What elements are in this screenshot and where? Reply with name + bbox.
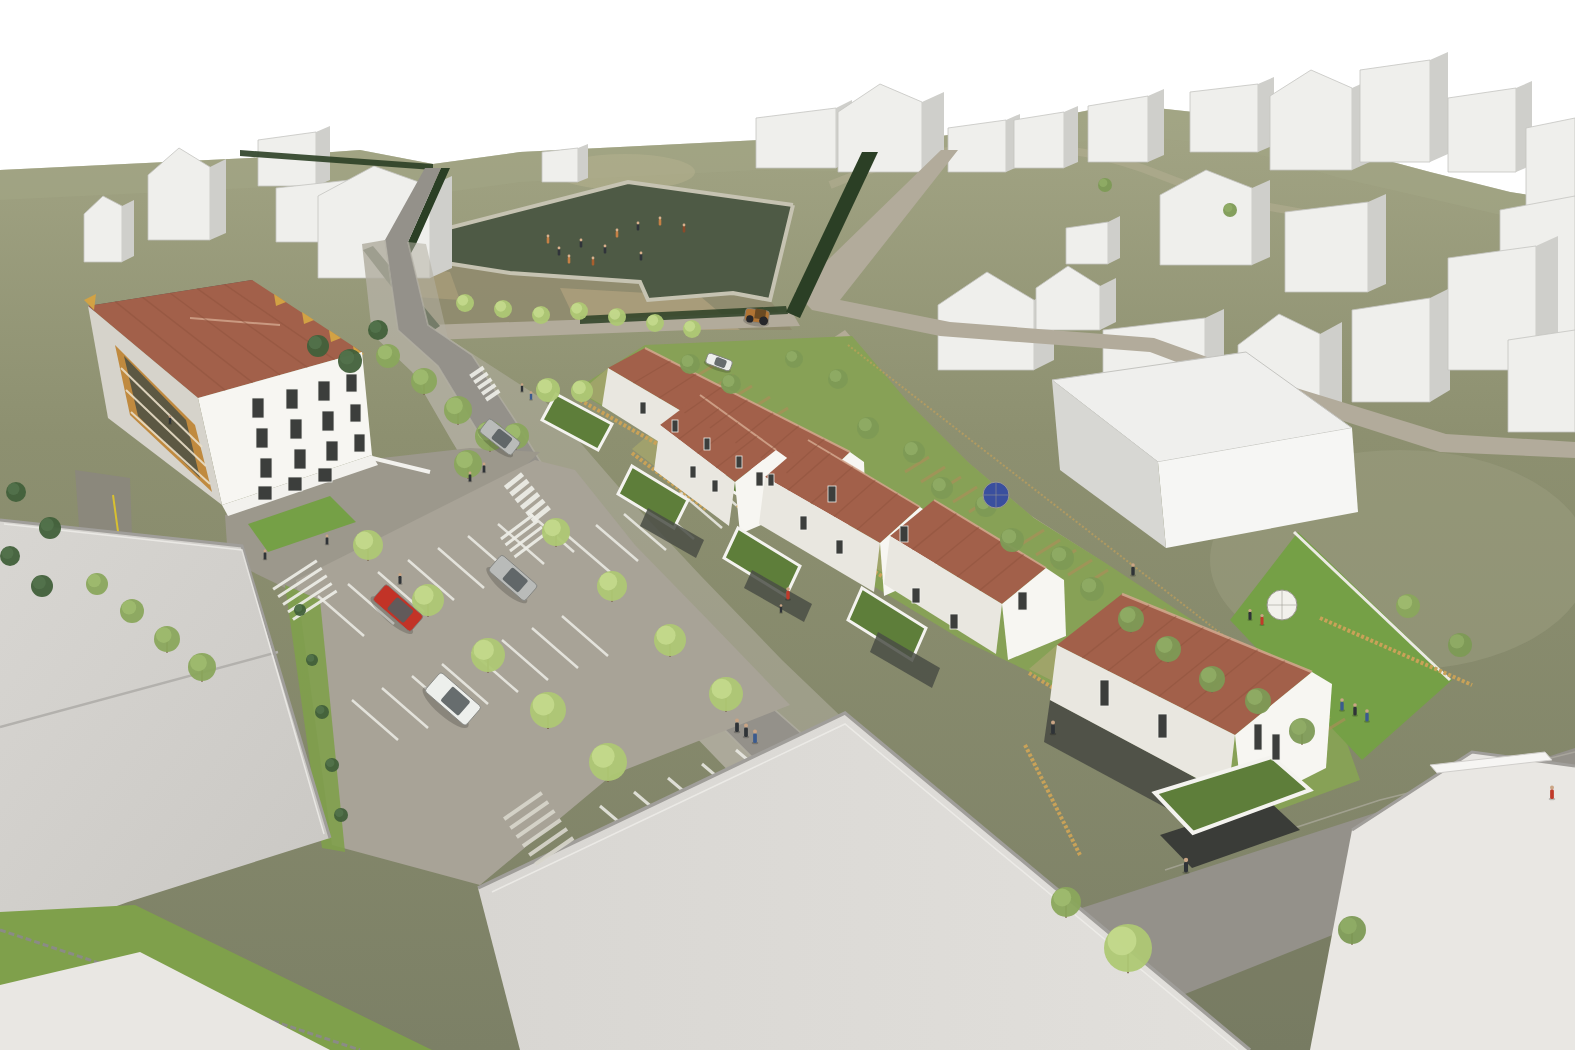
context-building [1508, 330, 1575, 432]
tree-canopy-highlight [684, 321, 695, 332]
tree-canopy-highlight [1247, 689, 1263, 705]
person-body [1260, 617, 1263, 625]
tree-olive [857, 417, 879, 439]
tree-olive [721, 374, 741, 394]
person-body [326, 537, 329, 544]
player-head [683, 224, 686, 227]
building-face [1285, 202, 1368, 292]
building-face [1088, 96, 1148, 162]
tree-canopy-highlight [457, 295, 468, 306]
blue-parasol [983, 482, 1009, 508]
tree-canopy-highlight [1157, 637, 1173, 653]
person-body [1184, 862, 1188, 873]
player-head [637, 222, 640, 225]
window [640, 402, 646, 414]
person-body [780, 607, 782, 613]
player-head [659, 217, 662, 220]
tree-canopy-highlight [474, 640, 494, 660]
building-shadow-face [210, 159, 226, 240]
tree-canopy-highlight [307, 655, 314, 662]
window [736, 456, 742, 468]
window [1272, 734, 1280, 760]
window [672, 420, 678, 432]
tree-canopy-highlight [41, 518, 54, 531]
building-shadow-face [1100, 278, 1116, 330]
person-body [483, 465, 486, 472]
tree-canopy-highlight [335, 809, 343, 817]
tree-canopy-highlight [2, 547, 14, 559]
tree-canopy-highlight [933, 478, 946, 491]
tree-canopy-highlight [316, 706, 324, 714]
window [350, 404, 361, 422]
building-face [1014, 112, 1064, 168]
person-head [169, 415, 172, 418]
person-head [735, 719, 739, 723]
building-face [1360, 60, 1430, 162]
tree-light [570, 302, 588, 320]
tree-canopy-highlight [495, 301, 506, 312]
tree-canopy-highlight [1398, 595, 1412, 609]
tree-canopy-highlight [1291, 719, 1307, 735]
person-head [1260, 614, 1263, 617]
tree-canopy-highlight [1099, 179, 1107, 187]
tree-canopy-highlight [647, 315, 658, 326]
player-head [558, 247, 561, 250]
player-head [592, 257, 595, 260]
building-shadow-face [1108, 216, 1120, 264]
soccer-player [592, 257, 595, 266]
person-head [786, 587, 790, 591]
tree-canopy-highlight [156, 627, 172, 643]
tree-light [536, 378, 560, 402]
tree-dark [39, 517, 61, 539]
soccer-player [683, 224, 686, 233]
tree-canopy-highlight [413, 369, 429, 385]
person-body [169, 418, 171, 424]
tree-olive [1223, 203, 1237, 217]
tree-canopy-highlight [8, 483, 20, 495]
tree-canopy-highlight [340, 350, 354, 364]
tree-mid [86, 573, 108, 595]
window [252, 398, 264, 418]
window [318, 381, 330, 401]
tree-canopy-highlight [33, 576, 46, 589]
white-parasol [1267, 590, 1297, 620]
window [900, 526, 908, 542]
player-body [580, 241, 583, 248]
window [258, 486, 272, 500]
building-shadow-face [1430, 52, 1448, 162]
tree-canopy-highlight [190, 654, 207, 671]
person-body [1365, 713, 1368, 722]
soccer-player [637, 222, 640, 231]
building-face [1066, 222, 1108, 264]
person-body [1340, 702, 1343, 711]
window [354, 434, 365, 452]
building-shadow-face [122, 200, 134, 262]
building-shadow-face [1148, 89, 1164, 162]
tree-light [608, 308, 626, 326]
tree-canopy-highlight [378, 345, 392, 359]
window [1254, 724, 1262, 750]
tree-olive [903, 441, 925, 463]
tree-dark [6, 482, 26, 502]
tree-olive [1448, 633, 1472, 657]
person-body [1353, 707, 1356, 716]
window [768, 474, 774, 486]
soccer-player [547, 235, 550, 244]
tree-dark [307, 335, 329, 357]
person-head [753, 730, 757, 734]
tree-canopy-highlight [573, 381, 586, 394]
tree-light [646, 314, 664, 332]
tree-olive [1080, 577, 1104, 601]
soccer-player [580, 239, 583, 248]
building-face [948, 120, 1006, 172]
building-face [1352, 298, 1430, 402]
person-body [753, 733, 757, 743]
window [756, 472, 763, 486]
tree-light [456, 294, 474, 312]
tree-canopy-highlight [88, 574, 101, 587]
tree-dark [306, 654, 318, 666]
person-body [264, 552, 267, 559]
person-head [1550, 786, 1554, 790]
player-head [547, 235, 550, 238]
soccer-player [616, 229, 619, 238]
tree-canopy-highlight [830, 370, 842, 382]
tree-canopy-highlight [1052, 547, 1066, 561]
person-body [398, 576, 401, 584]
tree-canopy-highlight [326, 759, 334, 767]
person-head [1051, 721, 1055, 725]
person-body [735, 722, 739, 732]
building-face [542, 148, 578, 182]
tree-canopy-highlight [723, 375, 735, 387]
tree-canopy-highlight [533, 307, 544, 318]
player-body [616, 231, 619, 238]
window [1100, 680, 1109, 706]
person-head [1353, 703, 1357, 707]
window [704, 438, 710, 450]
building-shadow-face [578, 144, 588, 182]
tree-canopy-highlight [859, 418, 872, 431]
person-body [1051, 724, 1055, 734]
tree-dark [325, 758, 339, 772]
player-body [683, 226, 686, 233]
window [286, 389, 298, 409]
soccer-player [640, 252, 643, 261]
person-body [786, 591, 789, 600]
tree-canopy-highlight [1224, 204, 1232, 212]
person-head [780, 604, 783, 607]
window [950, 614, 958, 629]
tree-light [571, 380, 593, 402]
tree-canopy-highlight [309, 336, 322, 349]
tree-olive [1098, 178, 1112, 192]
building-face [1508, 330, 1575, 432]
player-head [604, 245, 607, 248]
person-head [1365, 709, 1369, 713]
person-body [1550, 789, 1554, 799]
window [256, 428, 268, 448]
tree-canopy-highlight [571, 303, 582, 314]
tree-canopy-highlight [370, 321, 382, 333]
tree-canopy-highlight [1120, 607, 1136, 623]
window [690, 466, 696, 478]
tree-canopy-highlight [544, 519, 561, 536]
tree-canopy-highlight [786, 351, 797, 362]
window [294, 449, 306, 469]
building-face [1190, 84, 1258, 152]
soccer-player [604, 245, 607, 254]
person-head [521, 383, 524, 386]
soccer-player [558, 247, 561, 256]
tree-mid [1396, 594, 1420, 618]
tree-canopy-highlight [1053, 889, 1071, 907]
person-head [1131, 563, 1135, 567]
tree-dark [368, 320, 388, 340]
tree-canopy-highlight [538, 379, 552, 393]
player-body [604, 247, 607, 254]
tree-olive [931, 477, 953, 499]
player-body [592, 259, 595, 266]
player-body [637, 224, 640, 231]
tree-light [494, 300, 512, 318]
person-head [398, 573, 401, 576]
tree-dark [294, 604, 306, 616]
tree-canopy-highlight [1450, 634, 1464, 648]
player-head [580, 239, 583, 242]
player-head [616, 229, 619, 232]
building-shadow-face [1368, 194, 1386, 292]
person-head [469, 472, 472, 475]
window [1018, 592, 1027, 610]
tree-canopy-highlight [1340, 917, 1357, 934]
tree-canopy-highlight [1082, 578, 1096, 592]
soccer-player [659, 217, 662, 226]
window [346, 374, 357, 392]
tree-dark [315, 705, 329, 719]
tree-mid [376, 344, 400, 368]
player-body [547, 237, 550, 244]
tree-olive [828, 369, 848, 389]
tree-light [532, 306, 550, 324]
person-head [744, 724, 748, 728]
render-canvas [0, 0, 1575, 1050]
player-body [640, 254, 643, 261]
player-body [558, 249, 561, 256]
tree-canopy-highlight [905, 442, 918, 455]
tree-canopy-highlight [712, 679, 732, 699]
person-head [1340, 698, 1344, 702]
tree-canopy-highlight [122, 600, 136, 614]
tree-canopy-highlight [533, 694, 555, 716]
person-head [483, 463, 486, 466]
person-body [530, 394, 532, 400]
window [800, 516, 807, 530]
player-head [568, 255, 571, 258]
person-body [1131, 567, 1134, 576]
tree-canopy-highlight [1108, 926, 1137, 955]
tree-canopy-highlight [295, 605, 302, 612]
person-body [469, 474, 472, 481]
tree-dark [338, 349, 362, 373]
tree-olive [680, 354, 700, 374]
soccer-player [568, 255, 571, 264]
window [912, 588, 920, 603]
building-shadow-face [1064, 106, 1078, 168]
tree-mid [120, 599, 144, 623]
window [1158, 714, 1167, 738]
tree-olive [1000, 528, 1024, 552]
window [326, 441, 338, 461]
context-building [1360, 52, 1448, 162]
tree-olive [785, 350, 803, 368]
person-head [326, 535, 329, 538]
tree-light [683, 320, 701, 338]
window [260, 458, 272, 478]
tree-canopy-highlight [1002, 529, 1016, 543]
building-face [1448, 88, 1516, 172]
person-body [744, 727, 748, 737]
window [712, 480, 718, 492]
architectural-render [0, 0, 1575, 1050]
tree-canopy-highlight [599, 573, 617, 591]
tree-canopy-highlight [592, 745, 615, 768]
player-body [659, 219, 662, 226]
tree-olive [1050, 546, 1074, 570]
player-body [568, 257, 571, 264]
tree-canopy-highlight [355, 532, 373, 550]
tree-canopy-highlight [682, 355, 694, 367]
tree-dark [31, 575, 53, 597]
window [290, 419, 302, 439]
person-head [1184, 858, 1188, 862]
window [322, 411, 334, 431]
tree-dark [334, 808, 348, 822]
window [836, 540, 843, 554]
tree-canopy-highlight [456, 451, 473, 468]
tree-canopy-highlight [656, 626, 675, 645]
building-shadow-face [1252, 180, 1270, 265]
tree-canopy-highlight [1201, 667, 1217, 683]
person-head [264, 550, 267, 553]
window [828, 486, 836, 502]
building-shadow-face [1430, 288, 1450, 402]
person-body [521, 386, 523, 392]
tree-canopy-highlight [414, 586, 433, 605]
person-head [530, 391, 533, 394]
player-head [640, 252, 643, 255]
window [318, 468, 332, 482]
tree-dark [0, 546, 20, 566]
person-body [1248, 612, 1251, 620]
building-face [756, 108, 836, 168]
tree-canopy-highlight [446, 397, 463, 414]
person-head [1248, 609, 1251, 612]
window [288, 477, 302, 491]
tree-canopy-highlight [609, 309, 620, 320]
